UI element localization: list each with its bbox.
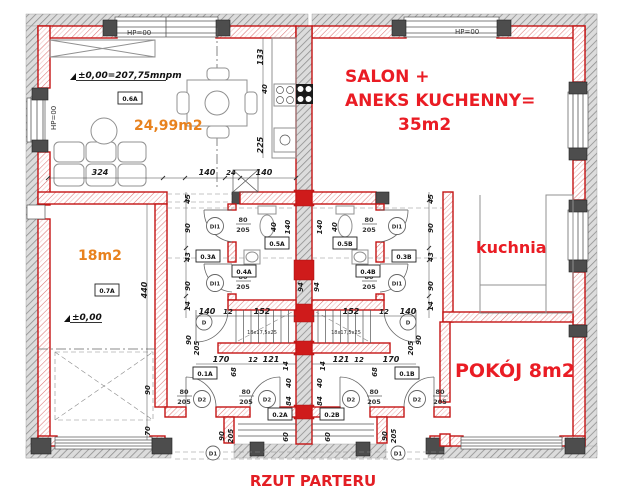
dim-68: 68 (371, 367, 379, 377)
svg-text:205: 205 (239, 398, 253, 406)
code-02b: 0.2B (320, 408, 344, 420)
dim-14: 14 (184, 301, 192, 311)
svg-text:205: 205 (433, 398, 447, 406)
dim-170: 170 (383, 355, 400, 364)
dim-205: 205 (407, 341, 415, 356)
level-mark-living: ±0,00=207,75mnpm (70, 71, 182, 81)
dim-90: 90 (185, 335, 193, 345)
area-room18: 18m2 (78, 248, 122, 264)
svg-text:80: 80 (435, 388, 445, 396)
dim-90: 90 (427, 281, 435, 291)
svg-text:80: 80 (364, 216, 374, 224)
dim-40: 40 (316, 378, 324, 388)
svg-text:80: 80 (179, 388, 189, 396)
svg-text:205: 205 (177, 398, 191, 406)
dim-140: 140 (256, 168, 273, 177)
hp-left-wall: HP=00 (50, 106, 58, 130)
svg-text:205: 205 (236, 283, 250, 291)
door-label: D2 (347, 398, 356, 404)
svg-text:205: 205 (367, 398, 381, 406)
svg-text:0.4A: 0.4A (236, 269, 252, 276)
door-d2-b2: D2 (404, 377, 434, 408)
door-label: D (202, 321, 207, 327)
svg-text:0.7A: 0.7A (99, 288, 115, 295)
door-label: DI1 (392, 282, 403, 288)
dim-60: 60 (324, 432, 332, 442)
dim-70: 70 (144, 426, 152, 436)
dim-90: 90 (381, 431, 389, 441)
svg-text:±0,00=207,75mnpm: ±0,00=207,75mnpm (78, 71, 182, 81)
dim-140: 140 (199, 168, 216, 177)
svg-text:0.2B: 0.2B (324, 412, 340, 419)
dim-14: 14 (427, 301, 435, 311)
wardrobe-x-symbol (50, 40, 155, 57)
dim-90: 90 (184, 223, 192, 233)
dim-440: 440 (140, 281, 149, 299)
salon-label-line1: SALON + (345, 67, 429, 87)
code-03b: 0.3B (392, 250, 416, 262)
dim-60: 60 (282, 432, 290, 442)
kitchen-counter-a (272, 38, 296, 158)
door-label: DI1 (210, 225, 221, 231)
dim-14: 14 (319, 361, 327, 371)
flue-box (296, 84, 313, 104)
svg-text:±0,00: ±0,00 (72, 313, 102, 323)
door-label: D1 (209, 452, 218, 458)
door-di1-b2: DI1 (380, 264, 408, 292)
dim-90: 90 (218, 431, 226, 441)
kuchnia-label: kuchnia (476, 238, 547, 257)
dim-68: 68 (230, 367, 238, 377)
dim-12: 12 (354, 356, 364, 364)
code-05b: 0.5B (333, 237, 357, 249)
stairs-note-b: 18x17,5x25 (331, 330, 361, 336)
door-d2-a2: D2 (250, 377, 280, 408)
svg-text:80: 80 (241, 388, 251, 396)
hp-top-left: HP=00 (127, 29, 151, 37)
dim-14: 14 (282, 361, 290, 371)
dim-12: 12 (248, 356, 258, 364)
dim-225: 225 (256, 136, 265, 153)
dim-40: 40 (331, 222, 339, 232)
dim-12: 12 (223, 308, 233, 316)
dim-43: 43 (184, 252, 192, 262)
svg-text:80: 80 (238, 216, 248, 224)
dim-45: 45 (184, 194, 192, 204)
dim-205: 205 (193, 341, 201, 356)
dim-133: 133 (256, 48, 265, 65)
code-01b: 0.1B (395, 367, 419, 379)
dim-205: 205 (227, 429, 235, 444)
salon-label-line3: 35m2 (398, 115, 451, 135)
dim-94: 94 (313, 282, 321, 292)
dim-40: 40 (261, 84, 269, 94)
level-mark-room18: ±0,00 (64, 313, 102, 323)
dim-170: 170 (213, 355, 230, 364)
code-04a: 0.4A (232, 265, 256, 277)
dim-40: 40 (285, 378, 293, 388)
dim-84: 84 (316, 396, 324, 406)
plan-title: RZUT PARTERU (250, 472, 376, 490)
dim-40: 40 (270, 222, 278, 232)
code-02a: 0.2A (268, 408, 292, 420)
svg-text:0.2A: 0.2A (272, 412, 288, 419)
svg-text:205: 205 (362, 226, 376, 234)
svg-text:0.1A: 0.1A (197, 371, 213, 378)
code-01a: 0.1A (193, 367, 217, 379)
dim-45: 45 (427, 194, 435, 204)
sofa (54, 142, 146, 186)
stairs-note-a: 18x17,5x25 (247, 330, 277, 336)
door-label: D2 (413, 398, 422, 404)
door-label: DI1 (210, 282, 221, 288)
hp-top-right: HP=00 (455, 28, 479, 36)
svg-text:80: 80 (369, 388, 379, 396)
size-d2-b1: 80205 (367, 388, 382, 406)
dim-43: 43 (427, 252, 435, 262)
door-di1-a1: DI1 (204, 210, 232, 242)
svg-text:0.3B: 0.3B (396, 254, 412, 261)
dim-121: 121 (333, 355, 350, 364)
dim-140: 140 (316, 220, 324, 235)
shaft-x-symbol (233, 170, 258, 192)
code-07a: 0.7A (95, 284, 119, 296)
door-label: D2 (263, 398, 272, 404)
door-di1-a2: DI1 (204, 264, 232, 292)
window-top-right (392, 17, 511, 37)
door-entry-b: D1 (391, 446, 405, 460)
code-05a: 0.5A (265, 237, 289, 249)
code-06a: 0.6A (118, 92, 142, 104)
door-d2-b1: D2 (340, 377, 370, 408)
svg-text:0.5A: 0.5A (269, 241, 285, 248)
dim-205: 205 (390, 429, 398, 444)
salon-label-line2: ANEKS KUCHENNY= (345, 91, 535, 111)
dim-140: 140 (199, 307, 216, 316)
dim-152: 152 (343, 307, 360, 316)
pokoj-label: POKÓJ 8m2 (455, 358, 575, 382)
svg-text:0.3A: 0.3A (200, 254, 216, 261)
door-label: D (406, 321, 411, 327)
dim-90: 90 (184, 281, 192, 291)
svg-text:0.5B: 0.5B (337, 241, 353, 248)
dim-90: 90 (415, 335, 423, 345)
dim-140: 140 (284, 220, 292, 235)
floor-plan-drawing: DI1 DI1 DI1 DI1 D D (0, 0, 619, 500)
size-di1-b1: 80205 (362, 216, 377, 234)
dim-324: 324 (92, 168, 109, 177)
door-label: DI1 (392, 225, 403, 231)
dim-24: 24 (226, 169, 236, 177)
svg-text:205: 205 (236, 226, 250, 234)
door-label: D1 (394, 452, 403, 458)
sink-b (352, 250, 368, 264)
dim-84: 84 (285, 396, 293, 406)
dim-152: 152 (254, 307, 271, 316)
door-label: D2 (198, 398, 207, 404)
svg-text:0.6A: 0.6A (122, 96, 138, 103)
dim-94: 94 (297, 282, 305, 292)
code-03a: 0.3A (196, 250, 220, 262)
door-di1-b1: DI1 (380, 210, 408, 242)
sink-a (244, 250, 260, 264)
window-top-left (103, 17, 230, 37)
area-living: 24,99m2 (134, 118, 203, 134)
size-d2-a1: 80205 (177, 388, 192, 406)
furniture-living-a (50, 38, 313, 192)
size-di1-a1: 80205 (236, 216, 251, 234)
dim-121: 121 (263, 355, 280, 364)
dim-90: 90 (144, 385, 152, 395)
dim-12: 12 (379, 308, 389, 316)
svg-text:0.1B: 0.1B (399, 371, 415, 378)
dim-90: 90 (427, 223, 435, 233)
code-04b: 0.4B (356, 265, 380, 277)
coffee-table (91, 118, 117, 144)
floor-plan-canvas: DI1 DI1 DI1 DI1 D D (0, 0, 619, 500)
door-entry-a: D1 (206, 446, 220, 460)
dim-140: 140 (400, 307, 417, 316)
svg-text:0.4B: 0.4B (360, 269, 376, 276)
svg-text:205: 205 (362, 283, 376, 291)
